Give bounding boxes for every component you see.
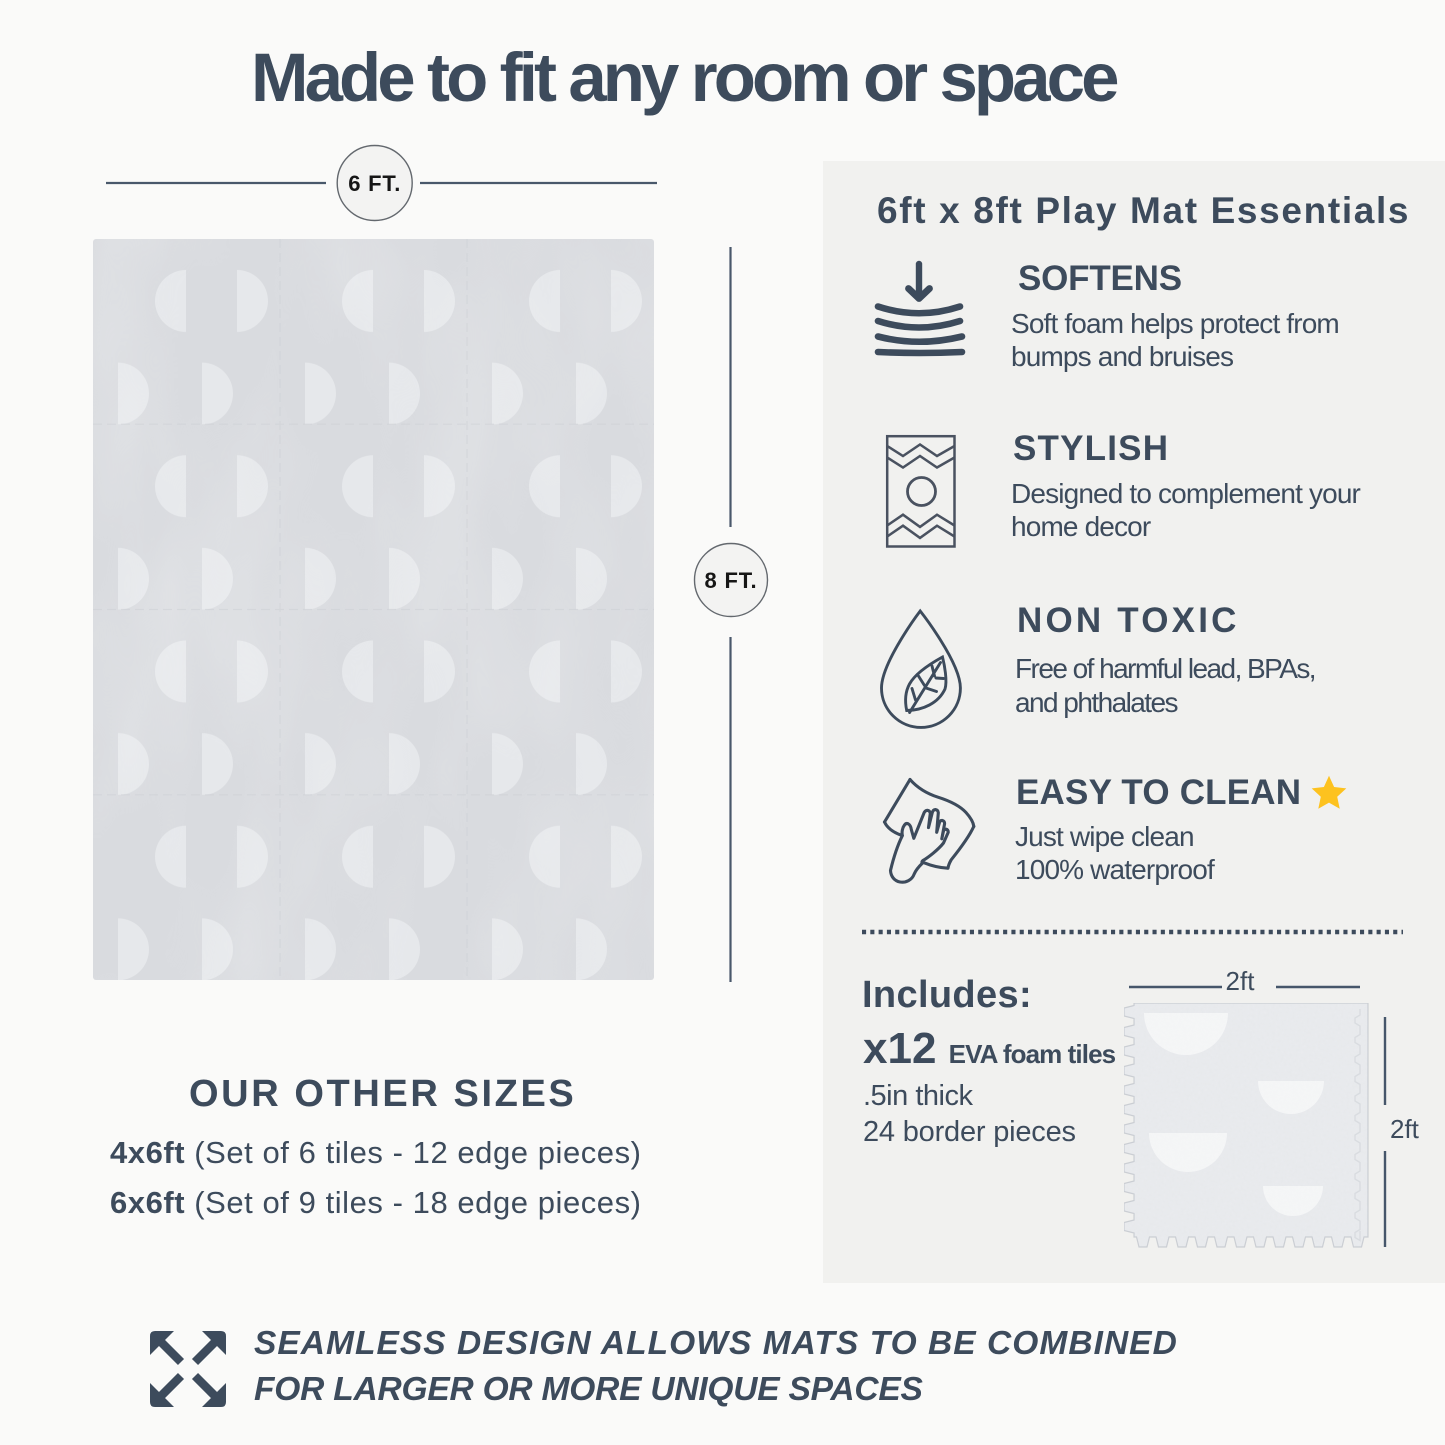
svg-text:6 FT.: 6 FT. — [348, 171, 401, 196]
svg-text:8 FT.: 8 FT. — [705, 568, 758, 593]
svg-text:2ft: 2ft — [1226, 966, 1256, 996]
svg-text:2ft: 2ft — [1390, 1114, 1420, 1144]
